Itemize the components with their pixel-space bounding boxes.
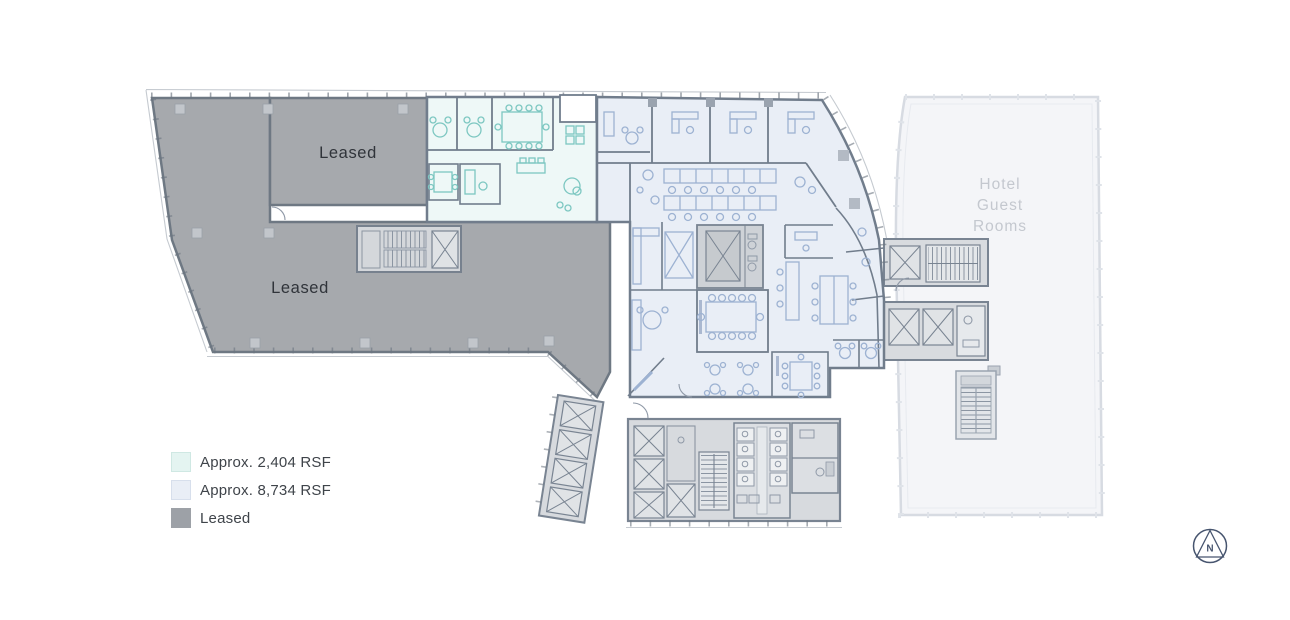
leased-label-lower: Leased [271, 279, 329, 297]
legend-label-leased: Leased [200, 510, 250, 527]
svg-text:Guest: Guest [977, 197, 1023, 214]
north-letter: N [1206, 544, 1213, 555]
hotel-stair [956, 366, 1000, 439]
legend-label-2404: Approx. 2,404 RSF [200, 454, 331, 471]
restrooms [734, 423, 790, 518]
legend-label-8734: Approx. 8,734 RSF [200, 482, 331, 499]
legend: Approx. 2,404 RSF Approx. 8,734 RSF Leas… [171, 452, 331, 536]
legend-item-2404: Approx. 2,404 RSF [171, 452, 331, 472]
leased-stair-block [357, 226, 461, 272]
legend-swatch-2404 [171, 452, 191, 472]
legend-swatch-leased [171, 508, 191, 528]
legend-swatch-8734 [171, 480, 191, 500]
legend-item-8734: Approx. 8,734 RSF [171, 480, 331, 500]
suite-2404 [427, 95, 597, 222]
leased-label-upper: Leased [319, 144, 377, 162]
floorplan-page: Hotel Guest Rooms [0, 0, 1290, 620]
svg-text:Hotel: Hotel [979, 176, 1020, 193]
hotel-label: Hotel Guest Rooms [973, 176, 1027, 235]
elevator-bank [536, 395, 603, 523]
suite-shaft [697, 225, 763, 288]
suite-8734 [597, 97, 888, 398]
svg-text:Rooms: Rooms [973, 218, 1027, 235]
north-compass: N [1194, 530, 1227, 563]
legend-item-leased: Leased [171, 508, 331, 528]
